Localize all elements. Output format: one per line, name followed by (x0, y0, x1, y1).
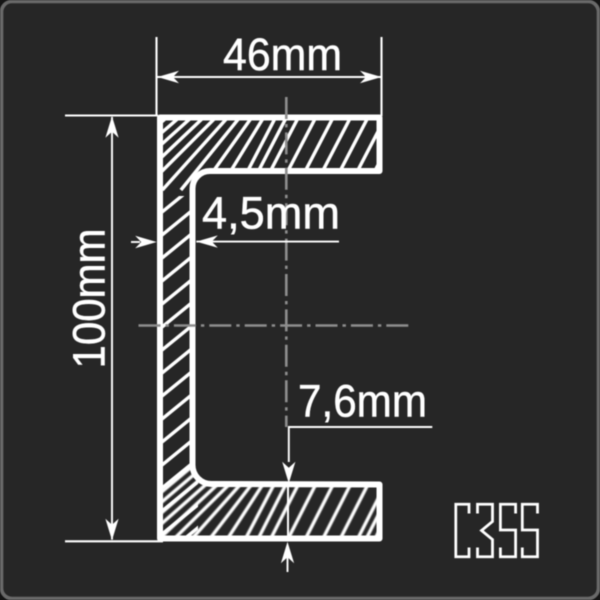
svg-text:46mm: 46mm (223, 29, 342, 80)
svg-text:4,5mm: 4,5mm (202, 188, 340, 239)
svg-text:7,6mm: 7,6mm (298, 376, 427, 427)
svg-text:100mm: 100mm (64, 229, 115, 369)
